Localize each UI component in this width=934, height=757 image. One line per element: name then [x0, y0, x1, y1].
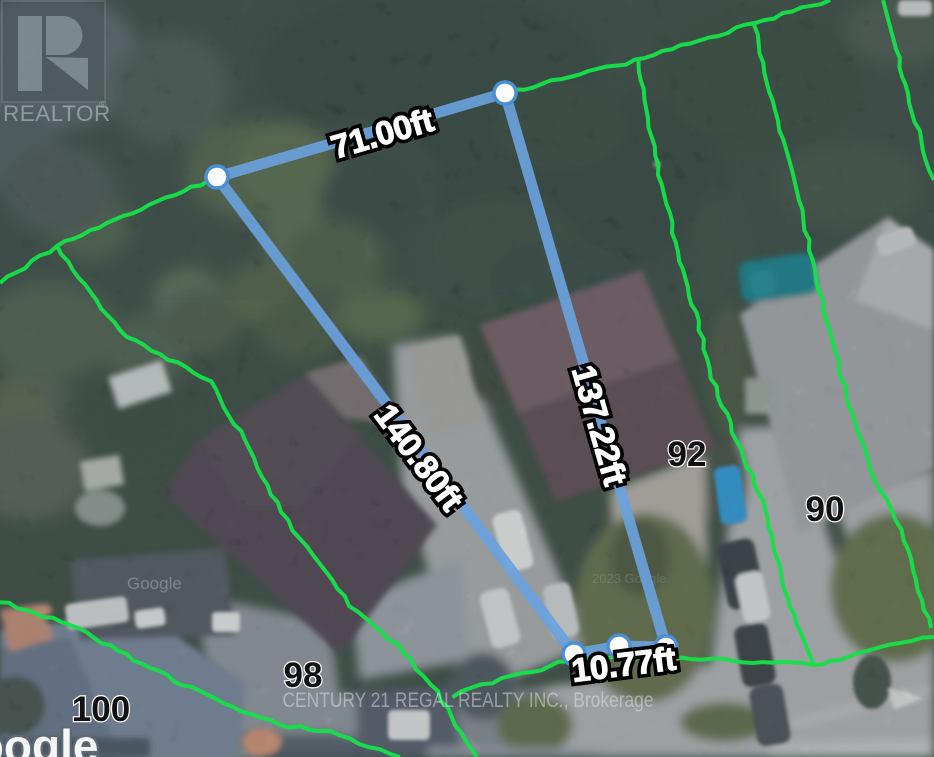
svg-text:92: 92 — [668, 435, 707, 474]
svg-text:2023 Google: 2023 Google — [592, 571, 666, 586]
svg-text:®: ® — [99, 100, 107, 111]
svg-text:CENTURY 21 REGAL REALTY INC.,: CENTURY 21 REGAL REALTY INC., Brokerage — [283, 689, 654, 712]
svg-text:90: 90 — [806, 490, 845, 529]
svg-text:REALTOR: REALTOR — [3, 101, 111, 126]
svg-text:Google: Google — [0, 720, 98, 757]
svg-text:Google: Google — [127, 574, 182, 593]
